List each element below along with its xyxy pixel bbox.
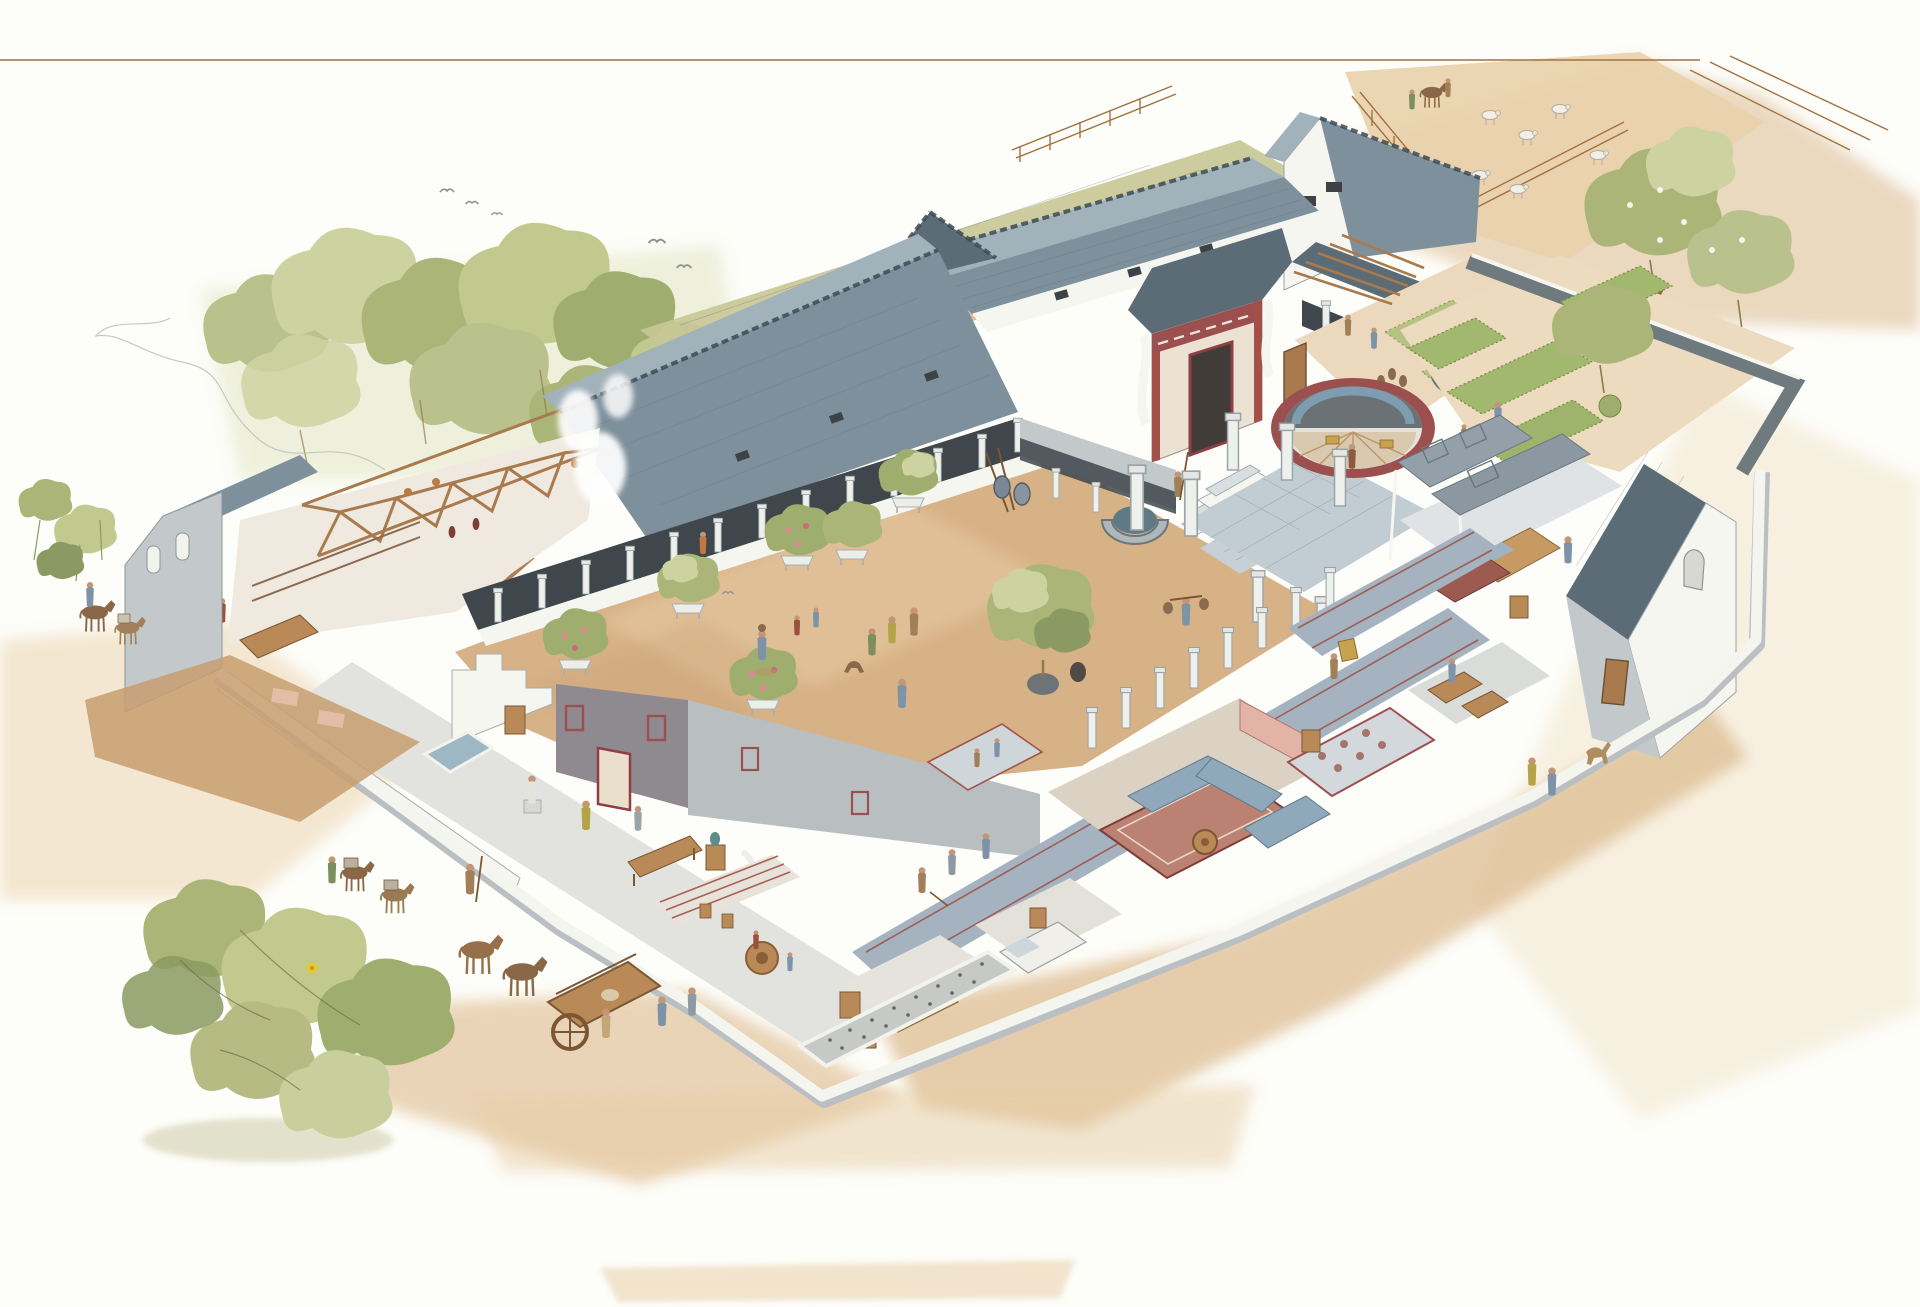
cart-loader-3	[688, 987, 697, 1015]
bush-pot	[1599, 395, 1621, 417]
arched-window	[1684, 550, 1704, 590]
south-wash-strip	[470, 1085, 1255, 1172]
villager-3	[910, 607, 919, 635]
entrance-door	[1190, 342, 1232, 455]
child-playing-1	[794, 615, 800, 635]
child-playing-2	[813, 607, 819, 627]
seated-figure	[700, 532, 707, 554]
villa-cutaway-scene	[0, 0, 1920, 1307]
villager-1	[868, 628, 876, 655]
parapet-left	[1142, 336, 1146, 424]
cart-loader-2	[658, 997, 667, 1027]
exedra-servant	[1348, 444, 1356, 469]
se-door	[1602, 659, 1628, 705]
walker-yellow	[582, 801, 591, 831]
villager-2	[888, 616, 896, 643]
amphora-jar	[1070, 662, 1086, 682]
woman-in-blue	[898, 679, 907, 709]
woman-with-jar	[758, 631, 767, 661]
cabinet	[505, 706, 525, 734]
walker-grey	[634, 806, 642, 831]
villa-illustration	[0, 0, 1920, 1307]
parapet-right	[1266, 300, 1270, 376]
clerk	[1448, 658, 1456, 683]
tray-carrier	[1330, 653, 1338, 679]
cart-loader-1	[602, 1009, 611, 1039]
bath-figure	[1564, 536, 1572, 563]
